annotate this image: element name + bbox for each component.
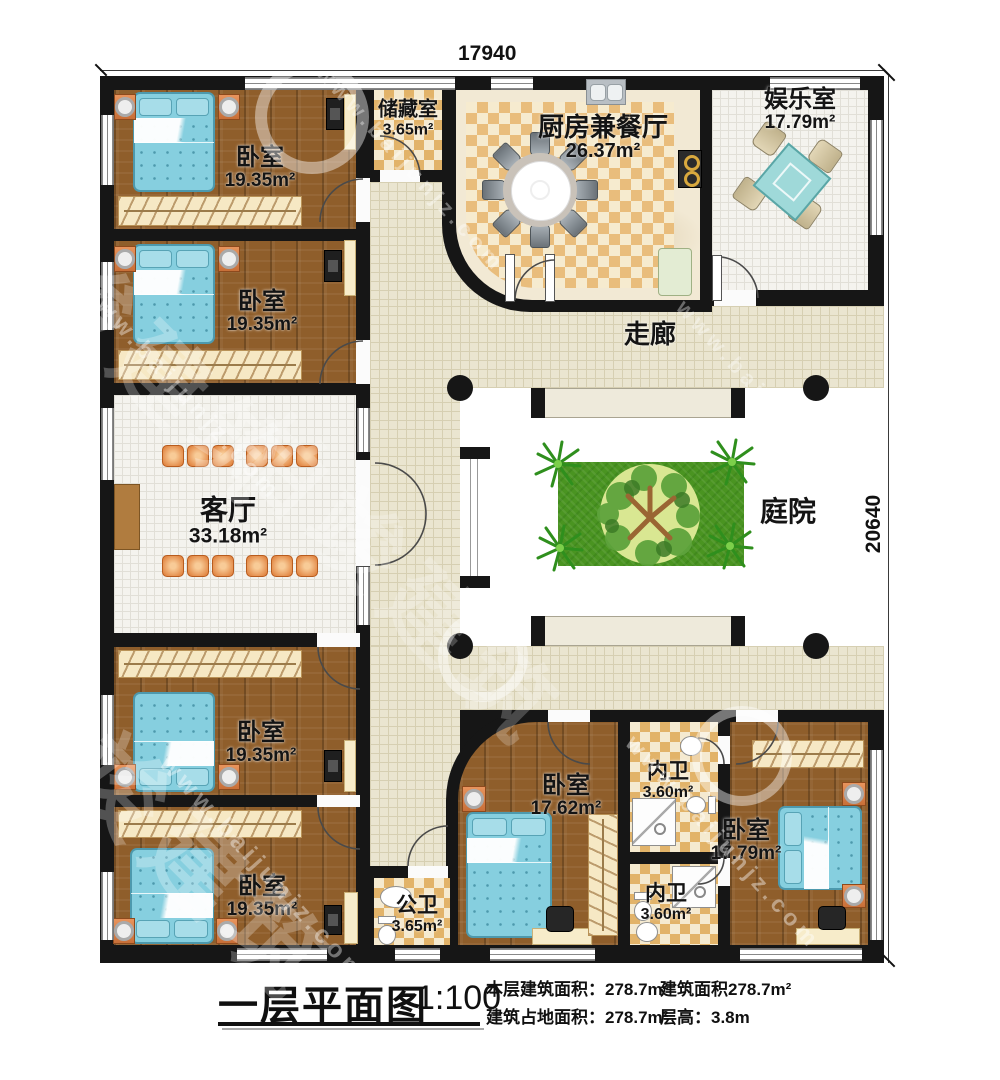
door-gap <box>408 866 448 878</box>
room-label-corridor: 走廊 <box>624 320 676 348</box>
desk <box>344 240 356 296</box>
dresser-screen <box>330 108 340 120</box>
dresser-screen <box>328 760 338 772</box>
room-name: 内卫 <box>643 761 694 784</box>
kitchen-sink <box>586 79 626 105</box>
column-ne <box>803 375 829 401</box>
door-gap <box>317 633 360 647</box>
room-label-bedroom-3: 卧室 19.35m² <box>226 720 297 766</box>
column-nw <box>447 375 473 401</box>
bed-fold <box>131 893 213 918</box>
stool <box>162 445 184 467</box>
door-gap <box>356 460 370 566</box>
wardrobe-rod <box>756 753 859 755</box>
stat-footprint-area: 建筑占地面积：278.7m² <box>486 1003 668 1028</box>
room-name: 卧室 <box>225 145 296 171</box>
stat-label: 建筑占地面积： <box>486 1008 605 1027</box>
stat-value: 3.8m <box>711 1008 750 1027</box>
pillow <box>511 818 546 836</box>
window <box>491 77 533 90</box>
nightstand <box>842 782 866 806</box>
bed <box>133 244 215 344</box>
stool <box>271 555 293 577</box>
tv-dresser <box>324 905 342 935</box>
pillow <box>136 920 170 938</box>
stool <box>212 445 234 467</box>
lamp-icon <box>464 789 484 809</box>
courtyard-step-bottom <box>531 616 745 646</box>
stat-building-area: 建筑面积278.7m² <box>660 975 791 1000</box>
bed <box>133 92 215 192</box>
lamp-icon <box>844 886 864 906</box>
bed-fold <box>134 270 214 295</box>
nightstand <box>216 918 238 944</box>
courtyard-west-rail <box>470 459 478 576</box>
window <box>245 77 455 90</box>
desk <box>344 740 356 792</box>
pillar-west-upper <box>460 447 490 459</box>
stool <box>246 555 268 577</box>
nightstand <box>218 94 240 120</box>
pillow <box>472 818 507 836</box>
sink-basin <box>607 84 623 101</box>
pillar-top-right <box>731 388 745 418</box>
nightstand <box>114 764 136 790</box>
door-gap <box>736 710 778 722</box>
door-leaf <box>712 255 722 301</box>
room-label-bedroom-4: 卧室 19.35m² <box>227 874 298 920</box>
chair <box>530 224 550 248</box>
pillow <box>176 250 209 268</box>
pillar-bottom-left <box>531 616 545 646</box>
lamp-icon <box>219 97 239 117</box>
door-gap <box>380 170 420 182</box>
bathroom-sink <box>680 736 702 756</box>
pillow <box>174 920 208 938</box>
room-name: 卧室 <box>227 874 298 900</box>
door-leaf <box>505 254 515 302</box>
wardrobe-rod <box>124 364 295 366</box>
desk <box>344 94 356 150</box>
dining-table <box>503 153 577 227</box>
stove <box>678 150 702 188</box>
wardrobe <box>118 810 302 838</box>
bed <box>133 692 215 792</box>
door-gap <box>317 795 360 807</box>
room-area: 3.60m² <box>641 906 692 923</box>
room-name: 庭院 <box>760 497 816 527</box>
room-name: 内卫 <box>641 883 692 906</box>
pillar-bottom-right <box>731 616 745 646</box>
room-name: 储藏室 <box>378 100 438 122</box>
dimension-right-line <box>888 76 889 963</box>
room-label-bedroom-1: 卧室 19.35m² <box>225 145 296 191</box>
room-area: 33.18m² <box>189 526 267 549</box>
room-label-bedroom-2: 卧室 19.35m² <box>227 289 298 335</box>
stat-floor-area: 本层建筑面积：278.7m² <box>486 975 668 1000</box>
column-se <box>803 633 829 659</box>
stat-label: 层高： <box>660 1008 711 1027</box>
desk <box>344 892 358 944</box>
nightstand <box>842 884 866 908</box>
room-name: 娱乐室 <box>764 87 836 113</box>
room-area: 19.35m² <box>225 171 296 192</box>
bed <box>130 848 214 944</box>
nightstand <box>218 246 240 272</box>
column-sw <box>447 633 473 659</box>
lamp-icon <box>115 97 135 117</box>
window <box>870 120 883 235</box>
lamp-icon <box>115 767 135 787</box>
dimension-tick <box>883 69 896 82</box>
room-label-courtyard: 庭院 <box>760 497 816 527</box>
pillow <box>784 850 802 884</box>
window <box>237 948 327 961</box>
palm-icon <box>536 524 584 572</box>
tree-icon <box>590 454 710 574</box>
corridor-upper <box>370 182 442 312</box>
room-area: 19.35m² <box>227 900 298 921</box>
palm-icon <box>534 440 582 488</box>
room-label-storage: 储藏室 3.65m² <box>378 100 438 139</box>
burner-icon <box>684 155 700 171</box>
pillow <box>139 98 172 116</box>
room-name: 厨房兼餐厅 <box>538 113 668 141</box>
wardrobe-rod <box>124 663 295 665</box>
nightstand <box>114 246 136 272</box>
room-label-kitchen-dining: 厨房兼餐厅 26.37m² <box>538 113 668 163</box>
room-label-bedroom-6: 卧室 17.79m² <box>711 818 782 864</box>
lamp-icon <box>114 921 134 941</box>
door-gap <box>718 736 730 764</box>
room-area: 17.62m² <box>531 799 602 820</box>
window <box>357 567 370 625</box>
burner-icon <box>684 171 700 187</box>
chair <box>574 180 598 200</box>
window <box>101 408 114 480</box>
room-name: 卧室 <box>227 289 298 315</box>
nightstand <box>114 94 136 120</box>
tv-dresser <box>324 250 342 282</box>
window <box>490 948 595 961</box>
table-center <box>530 180 550 200</box>
shower <box>632 798 676 846</box>
pillow <box>176 768 209 786</box>
room-label-ensuite-bath-2: 内卫 3.60m² <box>641 883 692 923</box>
room-name: 走廊 <box>624 320 676 348</box>
window <box>101 872 114 940</box>
wardrobe-rod <box>124 210 295 212</box>
sideboard <box>114 484 140 550</box>
room-name: 客厅 <box>189 496 267 526</box>
window <box>870 750 883 940</box>
room-name: 公卫 <box>392 895 443 918</box>
stat-label: 建筑面积 <box>660 980 728 999</box>
pillow <box>139 768 172 786</box>
dimension-top-line <box>100 70 884 71</box>
door-gap <box>548 710 590 722</box>
stool <box>162 555 184 577</box>
door-gap <box>356 340 370 384</box>
stool <box>246 445 268 467</box>
pillar-top-left <box>531 388 545 418</box>
title-underline-thin <box>222 1028 484 1030</box>
wardrobe <box>118 650 302 678</box>
pillow <box>139 250 172 268</box>
title-underline <box>218 1022 480 1026</box>
bed <box>778 806 862 890</box>
stat-floor-height: 层高：3.8m <box>660 1003 750 1028</box>
stool <box>296 555 318 577</box>
stat-value: 278.7m² <box>605 1008 668 1027</box>
bed-fold <box>134 118 214 143</box>
dresser-screen <box>328 260 338 272</box>
fridge <box>658 248 692 296</box>
wardrobe <box>118 196 302 226</box>
lamp-icon <box>219 249 239 269</box>
lamp-icon <box>219 767 239 787</box>
pillar-west-lower <box>460 576 490 588</box>
window <box>357 408 370 452</box>
tv-dresser <box>326 98 344 130</box>
room-area: 19.35m² <box>227 315 298 336</box>
room-area: 17.79m² <box>764 113 836 134</box>
bathroom-sink <box>636 922 658 942</box>
window <box>101 262 114 330</box>
stool <box>187 555 209 577</box>
title-block: 一层平面图 1:100 本层建筑面积：278.7m² 建筑面积278.7m² 建… <box>0 965 1000 1080</box>
room-label-public-bath: 公卫 3.65m² <box>392 895 443 935</box>
wardrobe-rod <box>124 823 295 825</box>
door-leaf <box>545 254 555 302</box>
nightstand <box>218 764 240 790</box>
room-name: 卧室 <box>531 773 602 799</box>
stool <box>271 445 293 467</box>
wardrobe <box>752 740 864 768</box>
shower-drain-icon <box>654 823 666 835</box>
door-gap <box>356 178 370 222</box>
room-name: 卧室 <box>226 720 297 746</box>
window <box>395 948 440 961</box>
desk <box>796 928 860 945</box>
wardrobe-rod <box>602 819 604 932</box>
room-label-recreation: 娱乐室 17.79m² <box>764 87 836 133</box>
wardrobe <box>118 350 302 380</box>
toilet-tank <box>708 796 716 814</box>
room-area: 19.35m² <box>226 746 297 767</box>
stat-value: 278.7m² <box>605 980 668 999</box>
nightstand <box>113 918 135 944</box>
sink-basin <box>590 84 606 101</box>
stat-value: 278.7m² <box>728 980 791 999</box>
lamp-icon <box>844 784 864 804</box>
window <box>740 948 862 961</box>
room-label-ensuite-bath-1: 内卫 3.60m² <box>643 761 694 801</box>
bed-fold <box>134 741 214 766</box>
bed <box>466 812 552 938</box>
room-area: 26.37m² <box>538 141 668 163</box>
desk-chair <box>546 906 574 932</box>
desk-chair <box>818 906 846 930</box>
wardrobe <box>588 814 618 936</box>
room-label-bedroom-5: 卧室 17.62m² <box>531 773 602 819</box>
palm-icon <box>708 438 756 486</box>
room-area: 17.79m² <box>711 844 782 865</box>
stool <box>296 445 318 467</box>
window <box>101 115 114 185</box>
tv-dresser <box>324 750 342 782</box>
bed-fold <box>467 838 551 863</box>
room-area: 3.65m² <box>392 918 443 935</box>
pillow <box>784 812 802 846</box>
courtyard-step-top <box>531 388 745 418</box>
pillow <box>176 98 209 116</box>
lamp-icon <box>217 921 237 941</box>
room-area: 3.65m² <box>378 121 438 138</box>
dimension-top-value: 17940 <box>458 42 516 66</box>
room-area: 3.60m² <box>643 784 694 801</box>
card-table-inner <box>772 162 811 201</box>
bed-fold <box>804 807 829 889</box>
floor-plan-canvas: 卧室 19.35m² 卧室 19.35m² 储藏室 3.65m² 厨房兼餐厅 2… <box>0 0 1000 1080</box>
room-label-living-room: 客厅 33.18m² <box>189 496 267 549</box>
nightstand <box>462 786 486 812</box>
dimension-right-value: 20640 <box>862 494 886 554</box>
shower-drain-icon <box>694 886 706 898</box>
dresser-screen <box>328 914 338 925</box>
stool <box>212 555 234 577</box>
stool <box>187 445 209 467</box>
palm-icon <box>706 522 754 570</box>
stat-label: 本层建筑面积： <box>486 980 605 999</box>
window <box>101 695 114 765</box>
room-name: 卧室 <box>711 818 782 844</box>
lamp-icon <box>115 249 135 269</box>
